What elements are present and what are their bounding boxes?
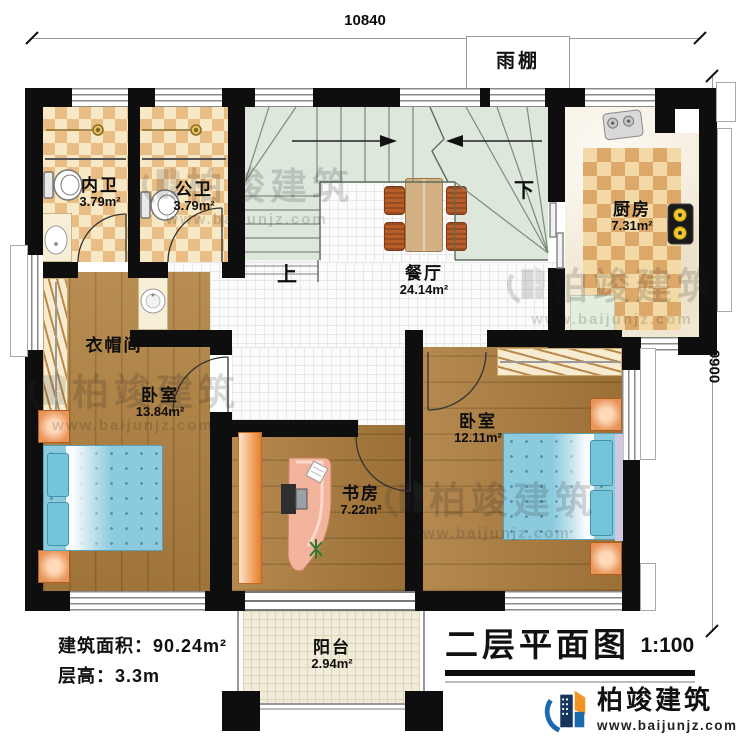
title-underline — [445, 670, 695, 676]
stair-up-label: 上 — [277, 258, 297, 287]
bedroom-right-area: 12.11m² — [434, 431, 522, 446]
dimension-line-top — [32, 38, 700, 39]
watermark-logo-icon — [505, 260, 551, 306]
study-cabinet — [238, 432, 262, 584]
canopy-box: 雨棚 — [466, 36, 570, 90]
watermark-url: www.baijunjz.com — [383, 525, 597, 542]
page-title: 二层平面图 — [445, 618, 630, 666]
window-bottom-left — [70, 591, 205, 611]
watermark-name: 柏竣建筑 — [72, 362, 240, 416]
dining-chair — [384, 222, 405, 251]
bath1-sink-counter — [40, 213, 72, 262]
cloakroom-name: 衣帽间 — [64, 336, 164, 355]
label-kitchen: 厨房 7.31m² — [592, 200, 672, 234]
watermark-logo-icon — [26, 366, 72, 412]
sill-kitchen-top — [716, 82, 736, 122]
balcony-column-right — [405, 691, 443, 731]
watermark-name: 柏竣建筑 — [551, 256, 719, 310]
balcony-area: 2.94m² — [288, 657, 376, 672]
kitchen-name: 厨房 — [592, 200, 672, 219]
brand-logo-icon — [543, 686, 591, 734]
nightstand — [38, 550, 70, 583]
balcony-rail-bottom2 — [237, 708, 425, 710]
dining-area: 24.14m² — [382, 283, 466, 298]
watermark: 柏竣建筑 www.baijunjz.com — [505, 256, 719, 328]
balcony-column-left — [222, 691, 260, 731]
balcony-name: 阳台 — [288, 638, 376, 657]
title-underline-thin — [445, 681, 695, 683]
nightstand — [590, 542, 622, 575]
brand-block: 柏竣建筑 www.baijunjz.com — [543, 686, 738, 734]
canopy-label: 雨棚 — [496, 51, 540, 72]
stair-down-label: 下 — [514, 174, 534, 203]
label-dining: 餐厅 24.14m² — [382, 264, 466, 298]
watermark-name: 柏竣建筑 — [429, 470, 597, 524]
hall-basin-counter — [138, 272, 168, 330]
brand-name: 柏竣建筑 — [597, 686, 738, 715]
balcony-rail-bottom — [237, 703, 425, 705]
kitchen-corner-shaft — [675, 109, 699, 133]
balcony-slider-door — [245, 591, 415, 611]
sill-kitchen-right — [717, 128, 732, 312]
bed-left — [43, 445, 163, 551]
watermark-logo-icon — [140, 160, 186, 206]
window-right-wall — [622, 370, 640, 460]
bed-left-sheet — [66, 446, 112, 550]
label-cloakroom: 衣帽间 — [64, 336, 164, 355]
floor-height-text: 层高：3.3m — [58, 662, 227, 692]
window-top-4 — [400, 88, 480, 107]
sill-left — [10, 245, 28, 357]
dining-table — [405, 178, 443, 252]
wall-bedroom-left-right — [210, 412, 232, 591]
label-bedroom-right: 卧室 12.11m² — [434, 412, 522, 446]
floor-plan: 10840 9900 雨棚 — [0, 0, 750, 751]
label-balcony: 阳台 2.94m² — [288, 638, 376, 672]
window-top-6 — [585, 88, 655, 107]
wall-below-bath-c — [222, 262, 245, 278]
label-bath1: 内卫 3.79m² — [60, 176, 140, 210]
building-area-text: 建筑面积：90.24m² — [58, 632, 227, 662]
brand-url: www.baijunjz.com — [597, 718, 738, 733]
dining-chair — [446, 186, 467, 215]
sill-right-mid — [640, 348, 656, 460]
dining-chair — [384, 186, 405, 215]
watermark-url: www.baijunjz.com — [26, 417, 240, 434]
wall-bedroom-left-top — [210, 330, 232, 355]
window-top-5 — [490, 88, 545, 107]
dining-chair — [446, 222, 467, 251]
wall-dining-bedroom — [487, 330, 622, 347]
hall-tile — [232, 347, 405, 425]
bedroom-right-name: 卧室 — [434, 412, 522, 431]
bath1-name: 内卫 — [60, 176, 140, 195]
dimension-top: 10840 — [330, 12, 400, 29]
title-block: 二层平面图 1:100 — [445, 618, 695, 683]
window-top-2 — [155, 88, 222, 107]
bedroom-right-wardrobe — [497, 348, 622, 376]
wall-study-bedroom — [405, 330, 423, 591]
stair-flight-right — [455, 182, 548, 260]
watermark-name: 柏竣建筑 — [186, 156, 354, 210]
pillow — [47, 453, 69, 497]
bath1-area: 3.79m² — [60, 195, 140, 210]
sill-bottom-right — [640, 563, 656, 611]
wall-below-bath-b — [128, 262, 168, 278]
watermark: 柏竣建筑 www.baijunjz.com — [140, 156, 354, 228]
watermark-url: www.baijunjz.com — [505, 311, 719, 328]
watermark-url: www.baijunjz.com — [140, 211, 354, 228]
info-block: 建筑面积：90.24m² 层高：3.3m — [58, 632, 227, 691]
wall-kitchen-left-a — [548, 107, 565, 202]
pillow — [47, 502, 69, 546]
bed-right-headboard — [615, 434, 623, 541]
window-top-3 — [255, 88, 313, 107]
watermark: 柏竣建筑 www.baijunjz.com — [26, 362, 240, 434]
nightstand — [590, 398, 622, 431]
brand-text: 柏竣建筑 www.baijunjz.com — [597, 686, 738, 733]
kitchen-area: 7.31m² — [592, 219, 672, 234]
title-scale: 1:100 — [640, 634, 694, 658]
watermark: 柏竣建筑 www.baijunjz.com — [383, 470, 597, 542]
window-bottom-right — [505, 591, 622, 611]
window-top-1 — [72, 88, 128, 107]
watermark-logo-icon — [383, 474, 429, 520]
dining-name: 餐厅 — [382, 264, 466, 283]
